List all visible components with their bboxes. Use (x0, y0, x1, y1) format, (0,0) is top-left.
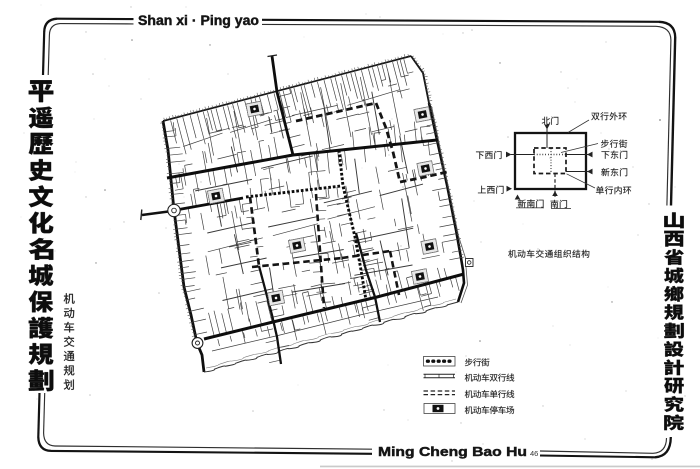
svg-text:Ming Cheng Bao Hu: Ming Cheng Bao Hu (378, 444, 527, 459)
svg-text:Shan xi · Ping yao: Shan xi · Ping yao (138, 13, 259, 28)
svg-text:46: 46 (530, 449, 538, 458)
